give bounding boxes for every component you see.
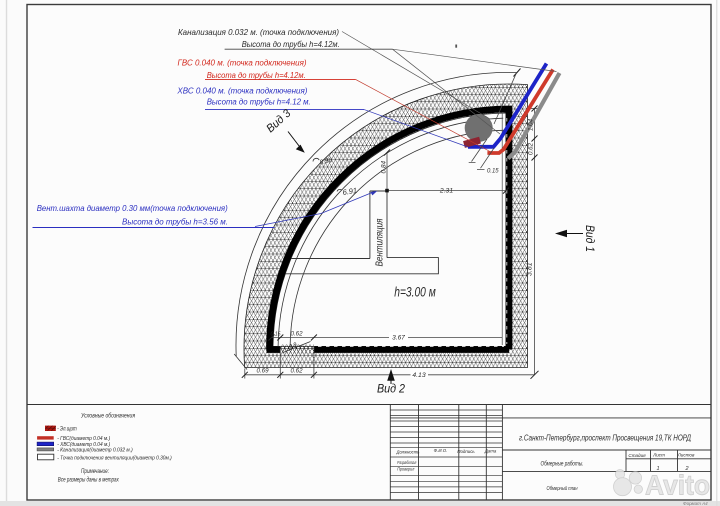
svg-text:Проверил: Проверил	[397, 467, 414, 472]
svg-text:2.31: 2.31	[439, 188, 453, 195]
svg-text:Дата: Дата	[484, 448, 497, 453]
svg-text:Должность: Должность	[396, 450, 421, 455]
svg-text:Обмерные работы.: Обмерные работы.	[541, 460, 584, 467]
svg-text:ХВС 0.040 м. (точка подключени: ХВС 0.040 м. (точка подключения)	[176, 85, 307, 95]
svg-text:- Эл.щит: - Эл.щит	[57, 426, 76, 433]
svg-text:г.Санкт-Петербург,проспект Про: г.Санкт-Петербург,проспект Просвещения 1…	[519, 434, 691, 443]
svg-text:Лист: Лист	[652, 453, 665, 458]
svg-text:0.62: 0.62	[290, 367, 303, 374]
svg-text:Вид 1: Вид 1	[583, 225, 595, 252]
svg-text:- Точка подключения вентиляции: - Точка подключения вентиляции(диаметр 0…	[57, 455, 172, 461]
svg-text:Условные обозначения: Условные обозначения	[80, 412, 135, 419]
svg-text:Вентиляция: Вентиляция	[375, 218, 386, 266]
svg-text:Вент.шахта диаметр 0.30 мм(точ: Вент.шахта диаметр 0.30 мм(точка подключ…	[37, 203, 228, 213]
svg-text:Обмерный план: Обмерный план	[547, 485, 579, 492]
svg-text:4.13: 4.13	[412, 372, 425, 379]
svg-text:Все размеры даны в метрах: Все размеры даны в метрах	[58, 476, 120, 483]
svg-text:0.84: 0.84	[380, 160, 387, 173]
svg-text:- Канализация(диаметр 0.032 м.: - Канализация(диаметр 0.032 м.)	[57, 447, 133, 453]
svg-text:Высота до трубы h=4.12 м.: Высота до трубы h=4.12 м.	[207, 96, 311, 106]
svg-text:0.62: 0.62	[290, 330, 303, 337]
svg-text:0.15: 0.15	[487, 169, 499, 175]
svg-text:Подпись: Подпись	[457, 449, 475, 454]
svg-text:Высота до трубы h=3.56 м.: Высота до трубы h=3.56 м.	[122, 217, 228, 227]
svg-text:Высота до трубы h=4.12м.: Высота до трубы h=4.12м.	[242, 39, 340, 49]
svg-text:Вид 2: Вид 2	[377, 384, 406, 396]
svg-text:ГВС 0.040 м. (точка подключени: ГВС 0.040 м. (точка подключения)	[178, 58, 307, 68]
svg-text:Примечание:: Примечание:	[81, 468, 109, 475]
svg-text:0.15: 0.15	[270, 331, 280, 337]
svg-text:Канализация 0.032 м. (точка по: Канализация 0.032 м. (точка подключения)	[178, 27, 339, 37]
svg-text:Высота до трубы h=4.12м.: Высота до трубы h=4.12м.	[207, 70, 306, 80]
svg-text:Разработал: Разработал	[397, 460, 416, 465]
svg-text:Формат А4: Формат А4	[683, 501, 708, 506]
svg-text:Ф.И.О.: Ф.И.О.	[434, 448, 448, 453]
svg-text:Avito: Avito	[645, 470, 710, 501]
svg-text:0.62: 0.62	[528, 142, 535, 155]
svg-text:3.81: 3.81	[526, 262, 533, 276]
svg-text:Стадия: Стадия	[628, 453, 646, 458]
svg-text:h=3.00 м: h=3.00 м	[394, 285, 436, 300]
svg-text:1.04: 1.04	[528, 118, 535, 131]
svg-text:Листов: Листов	[677, 453, 695, 458]
svg-text:0.69: 0.69	[256, 367, 269, 374]
svg-text:3.67: 3.67	[392, 334, 405, 341]
